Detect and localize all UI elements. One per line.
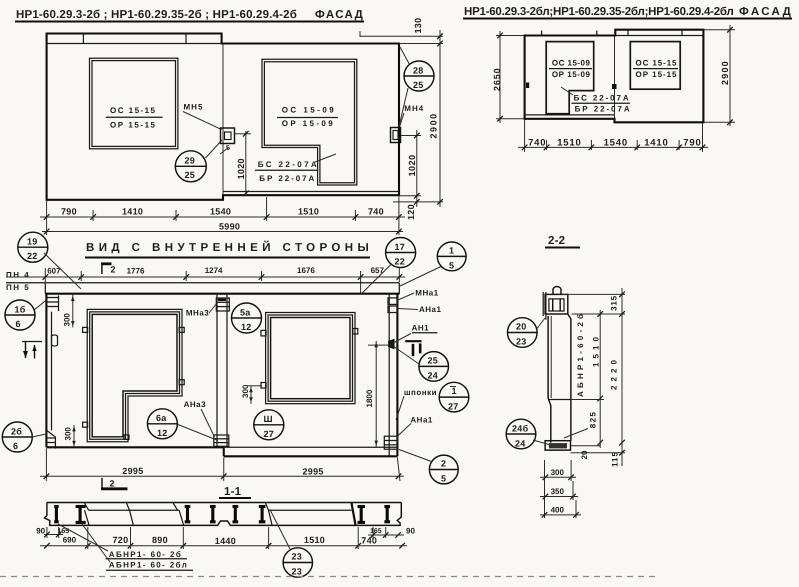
- svg-text:1410: 1410: [122, 207, 143, 217]
- svg-text:АБНР1- 60- 2бл: АБНР1- 60- 2бл: [109, 561, 187, 570]
- svg-text:23: 23: [516, 337, 527, 347]
- svg-text:690: 690: [63, 535, 77, 544]
- svg-text:6а: 6а: [156, 413, 167, 423]
- svg-text:23: 23: [292, 567, 303, 577]
- svg-text:1: 1: [452, 386, 457, 396]
- svg-text:24б: 24б: [512, 424, 529, 434]
- svg-text:БС 22-07А: БС 22-07А: [258, 160, 317, 169]
- svg-text:АН1: АН1: [412, 324, 430, 333]
- svg-text:1510: 1510: [304, 535, 325, 545]
- svg-text:28: 28: [413, 66, 424, 76]
- svg-text:17: 17: [395, 242, 406, 252]
- svg-text:20: 20: [580, 450, 589, 459]
- svg-text:1676: 1676: [297, 266, 315, 275]
- svg-text:АНа1: АНа1: [410, 416, 433, 425]
- svg-text:12: 12: [241, 322, 252, 332]
- svg-text:890: 890: [152, 535, 168, 545]
- svg-text:720: 720: [113, 535, 129, 545]
- svg-text:2: 2: [110, 479, 115, 489]
- svg-text:400: 400: [551, 505, 565, 514]
- svg-text:1540: 1540: [604, 138, 628, 149]
- svg-text:2995: 2995: [303, 466, 324, 476]
- svg-text:5: 5: [441, 474, 446, 484]
- svg-text:ПН 5: ПН 5: [6, 283, 30, 292]
- svg-text:2995: 2995: [122, 466, 143, 476]
- svg-text:НР1-60.29.3-2б ; НР1-60.29.35-: НР1-60.29.3-2б ; НР1-60.29.35-2б ; НР1-6…: [16, 9, 297, 21]
- svg-text:1540: 1540: [210, 207, 231, 217]
- svg-text:740: 740: [361, 536, 377, 546]
- svg-text:29: 29: [185, 156, 196, 166]
- svg-text:ОС 15-15: ОС 15-15: [110, 106, 156, 115]
- svg-text:790: 790: [683, 138, 701, 149]
- svg-text:1776: 1776: [127, 266, 145, 275]
- svg-text:25: 25: [413, 80, 424, 90]
- svg-text:ФАСАД: ФАСАД: [739, 6, 791, 18]
- svg-text:2900: 2900: [720, 61, 730, 85]
- svg-text:1510: 1510: [557, 138, 581, 149]
- svg-text:90: 90: [406, 527, 415, 536]
- svg-text:24: 24: [515, 439, 526, 449]
- svg-text:1б: 1б: [15, 305, 26, 315]
- svg-text:1020: 1020: [407, 155, 417, 177]
- svg-text:ОР 15-15: ОР 15-15: [110, 121, 156, 130]
- svg-text:БР 22-07А: БР 22-07А: [575, 105, 630, 114]
- svg-text:2650: 2650: [492, 68, 502, 91]
- svg-text:25: 25: [185, 170, 196, 180]
- svg-text:МНа3: МНа3: [186, 309, 209, 318]
- svg-text:АНа1: АНа1: [419, 305, 442, 314]
- svg-text:АБНР1- 60- 2б: АБНР1- 60- 2б: [109, 550, 181, 559]
- svg-text:1410: 1410: [644, 138, 668, 149]
- svg-text:120: 120: [406, 204, 416, 220]
- svg-text:5: 5: [449, 261, 454, 271]
- svg-text:300: 300: [241, 384, 250, 398]
- svg-text:825: 825: [589, 412, 598, 429]
- svg-text:24: 24: [428, 371, 439, 381]
- svg-text:790: 790: [61, 207, 77, 217]
- svg-text:6: 6: [16, 319, 21, 329]
- svg-text:1-1: 1-1: [224, 486, 242, 498]
- svg-text:ПН 4: ПН 4: [6, 271, 30, 280]
- svg-text:115: 115: [611, 451, 620, 467]
- svg-text:ОС 15-15: ОС 15-15: [636, 58, 678, 67]
- svg-text:315: 315: [610, 295, 619, 311]
- svg-text:ОР 15-15: ОР 15-15: [636, 70, 678, 79]
- svg-text:МН5: МН5: [184, 102, 204, 111]
- svg-text:300: 300: [64, 427, 73, 441]
- svg-text:165: 165: [370, 528, 382, 535]
- svg-text:МНа1: МНа1: [415, 289, 438, 298]
- svg-text:БР 22-07А: БР 22-07А: [259, 174, 314, 183]
- svg-text:350: 350: [551, 487, 565, 496]
- svg-text:шпонки: шпонки: [404, 388, 437, 397]
- svg-text:740: 740: [368, 207, 384, 217]
- svg-text:300: 300: [63, 313, 72, 327]
- svg-text:6: 6: [13, 441, 18, 451]
- svg-text:5а: 5а: [240, 308, 251, 318]
- svg-text:1440: 1440: [215, 536, 236, 546]
- svg-text:27: 27: [448, 402, 459, 412]
- svg-text:22: 22: [27, 251, 38, 261]
- svg-text:25: 25: [428, 356, 439, 366]
- svg-text:130: 130: [413, 18, 423, 34]
- svg-text:1: 1: [449, 246, 454, 256]
- svg-text:740: 740: [528, 138, 546, 149]
- svg-text:НР1-60.29.3-2бл;НР1-60.29.35-2: НР1-60.29.3-2бл;НР1-60.29.35-2бл;НР1-60.…: [464, 6, 734, 18]
- svg-text:1020: 1020: [236, 158, 246, 179]
- svg-text:2900: 2900: [429, 114, 439, 139]
- svg-text:19: 19: [27, 237, 38, 247]
- svg-text:12: 12: [157, 428, 168, 438]
- svg-text:20: 20: [516, 322, 527, 332]
- svg-text:27: 27: [264, 429, 275, 439]
- svg-text:657: 657: [371, 266, 385, 275]
- svg-text:23: 23: [292, 552, 303, 562]
- svg-text:ОР 15-09: ОР 15-09: [552, 70, 591, 79]
- svg-text:300: 300: [551, 468, 565, 477]
- svg-text:Ш: Ш: [264, 414, 273, 424]
- svg-text:1274: 1274: [205, 266, 223, 275]
- svg-text:22: 22: [395, 257, 406, 267]
- svg-text:2-2: 2-2: [548, 235, 565, 247]
- svg-text:1510: 1510: [298, 207, 319, 217]
- svg-text:МН4: МН4: [404, 104, 424, 113]
- svg-text:2: 2: [441, 459, 446, 469]
- svg-text:2: 2: [111, 265, 116, 275]
- svg-text:2б: 2б: [11, 427, 22, 437]
- svg-text:АНа3: АНа3: [184, 400, 207, 409]
- svg-text:5990: 5990: [219, 222, 240, 232]
- svg-text:ОС 15-09: ОС 15-09: [552, 58, 591, 67]
- svg-text:1800: 1800: [365, 389, 374, 407]
- svg-text:ФАСАД: ФАСАД: [315, 9, 363, 21]
- svg-text:БС 22-07А: БС 22-07А: [574, 94, 629, 103]
